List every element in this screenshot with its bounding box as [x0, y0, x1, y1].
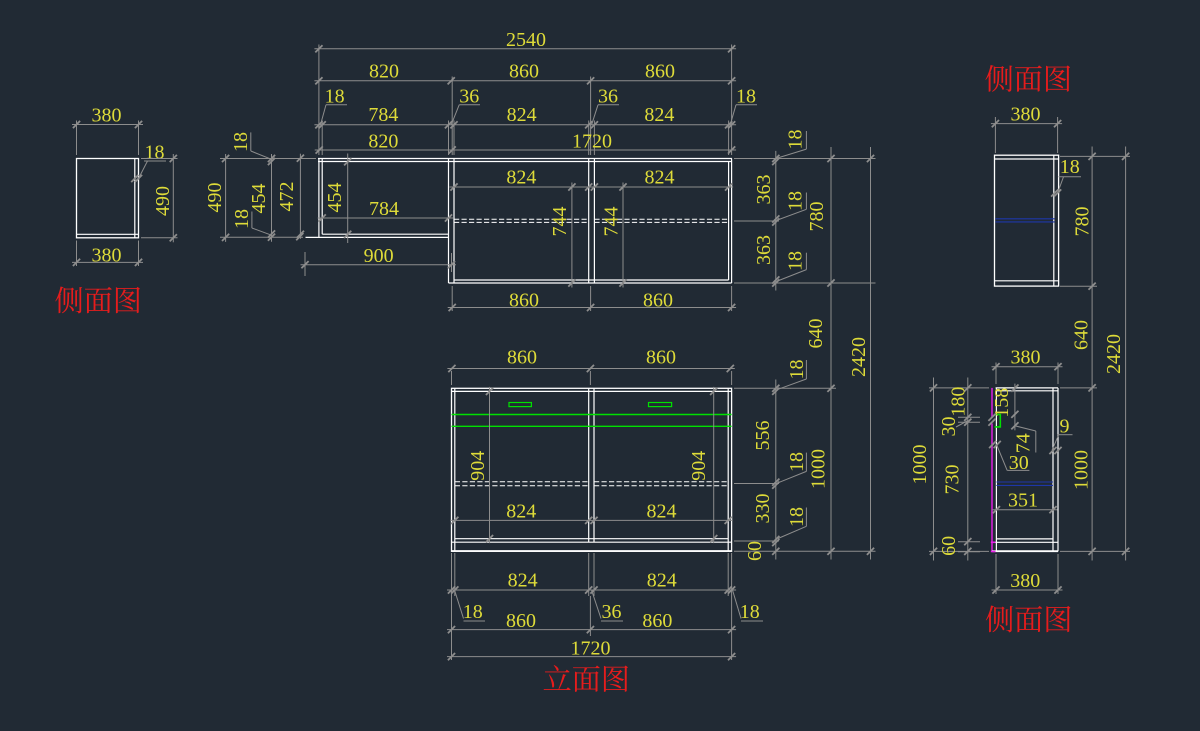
svg-text:18: 18 [736, 85, 756, 107]
svg-text:18: 18 [463, 601, 483, 623]
svg-text:900: 900 [364, 245, 394, 267]
svg-text:1720: 1720 [571, 638, 611, 660]
svg-text:820: 820 [369, 60, 399, 82]
svg-text:9: 9 [1060, 416, 1070, 438]
svg-text:1720: 1720 [572, 130, 612, 152]
svg-text:744: 744 [549, 207, 571, 237]
svg-text:380: 380 [92, 244, 122, 266]
svg-text:904: 904 [688, 451, 710, 481]
svg-text:36: 36 [598, 85, 618, 107]
svg-text:2540: 2540 [506, 29, 546, 51]
svg-text:18: 18 [231, 209, 253, 229]
svg-text:780: 780 [806, 202, 828, 232]
svg-text:640: 640 [1071, 320, 1093, 350]
svg-text:330: 330 [752, 494, 774, 524]
svg-text:860: 860 [506, 610, 536, 632]
svg-text:18: 18 [785, 191, 807, 211]
svg-text:380: 380 [92, 104, 122, 126]
svg-text:18: 18 [785, 251, 807, 271]
svg-text:824: 824 [644, 104, 674, 126]
svg-text:490: 490 [204, 183, 226, 213]
svg-text:363: 363 [753, 235, 775, 265]
svg-text:640: 640 [805, 319, 827, 349]
svg-text:860: 860 [645, 60, 675, 82]
svg-text:18: 18 [740, 601, 760, 623]
svg-text:180: 180 [947, 387, 969, 417]
svg-text:18: 18 [786, 507, 808, 527]
svg-text:824: 824 [506, 500, 536, 522]
svg-text:784: 784 [368, 104, 398, 126]
svg-text:824: 824 [506, 166, 536, 188]
svg-text:351: 351 [1008, 490, 1038, 512]
svg-text:860: 860 [509, 60, 539, 82]
svg-text:36: 36 [459, 85, 479, 107]
svg-text:860: 860 [646, 347, 676, 369]
svg-text:1000: 1000 [808, 449, 830, 489]
svg-text:860: 860 [643, 289, 673, 311]
svg-text:2420: 2420 [848, 337, 870, 377]
svg-text:363: 363 [753, 175, 775, 205]
svg-text:490: 490 [152, 186, 174, 216]
svg-text:784: 784 [369, 198, 399, 220]
svg-text:904: 904 [467, 451, 489, 481]
svg-text:824: 824 [645, 166, 675, 188]
svg-text:18: 18 [1060, 156, 1080, 178]
svg-text:18: 18 [230, 132, 252, 152]
svg-text:74: 74 [1013, 433, 1035, 453]
svg-text:30: 30 [938, 417, 960, 437]
svg-text:60: 60 [744, 541, 766, 561]
svg-text:860: 860 [642, 610, 672, 632]
svg-text:730: 730 [941, 465, 963, 495]
svg-text:1000: 1000 [1071, 450, 1093, 490]
svg-text:18: 18 [785, 130, 807, 150]
svg-text:2420: 2420 [1103, 334, 1125, 374]
svg-text:860: 860 [509, 289, 539, 311]
svg-text:820: 820 [368, 130, 398, 152]
svg-text:36: 36 [602, 601, 622, 623]
svg-text:18: 18 [786, 452, 808, 472]
svg-text:824: 824 [647, 570, 677, 592]
svg-text:18: 18 [325, 85, 345, 107]
svg-text:780: 780 [1072, 207, 1094, 237]
svg-text:824: 824 [508, 570, 538, 592]
svg-text:380: 380 [1011, 347, 1041, 369]
svg-text:824: 824 [647, 500, 677, 522]
svg-text:744: 744 [601, 207, 623, 237]
svg-text:380: 380 [1011, 103, 1041, 125]
svg-text:824: 824 [507, 104, 537, 126]
svg-text:380: 380 [1010, 570, 1040, 592]
svg-text:18: 18 [145, 141, 165, 163]
svg-text:158: 158 [991, 388, 1013, 418]
svg-text:556: 556 [752, 421, 774, 451]
svg-text:60: 60 [938, 536, 960, 556]
svg-text:18: 18 [786, 360, 808, 380]
svg-text:472: 472 [276, 182, 298, 212]
svg-text:860: 860 [507, 347, 537, 369]
svg-text:1000: 1000 [909, 445, 931, 485]
svg-text:454: 454 [248, 184, 270, 214]
svg-text:30: 30 [1009, 452, 1029, 474]
svg-text:454: 454 [324, 183, 346, 213]
